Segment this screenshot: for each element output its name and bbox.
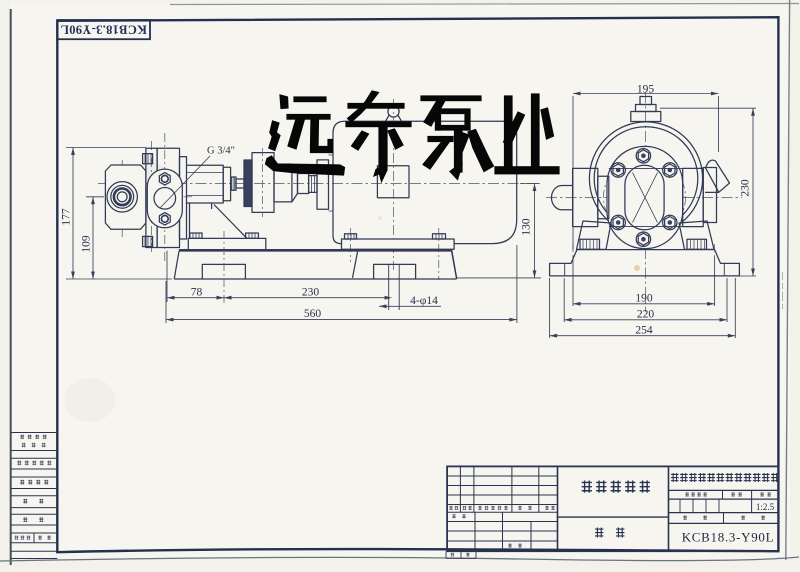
svg-text:G 3/4": G 3/4" — [207, 146, 235, 157]
svg-text:230: 230 — [740, 179, 752, 197]
svg-text:177: 177 — [61, 208, 73, 226]
svg-text:KCB18.3-Y90L: KCB18.3-Y90L — [682, 530, 775, 545]
svg-text:230: 230 — [302, 287, 320, 299]
svg-text:KCB18.3-Y90L: KCB18.3-Y90L — [60, 23, 147, 37]
svg-text:190: 190 — [635, 293, 653, 305]
svg-text:1:2.5: 1:2.5 — [756, 502, 775, 512]
svg-text:195: 195 — [637, 83, 655, 95]
svg-text:78: 78 — [191, 287, 203, 299]
svg-text:560: 560 — [304, 308, 322, 320]
svg-text:109: 109 — [81, 235, 93, 253]
svg-text:220: 220 — [637, 309, 655, 321]
svg-text:254: 254 — [635, 325, 653, 337]
svg-text:4-φ14: 4-φ14 — [410, 295, 438, 307]
svg-text:130: 130 — [521, 218, 533, 236]
